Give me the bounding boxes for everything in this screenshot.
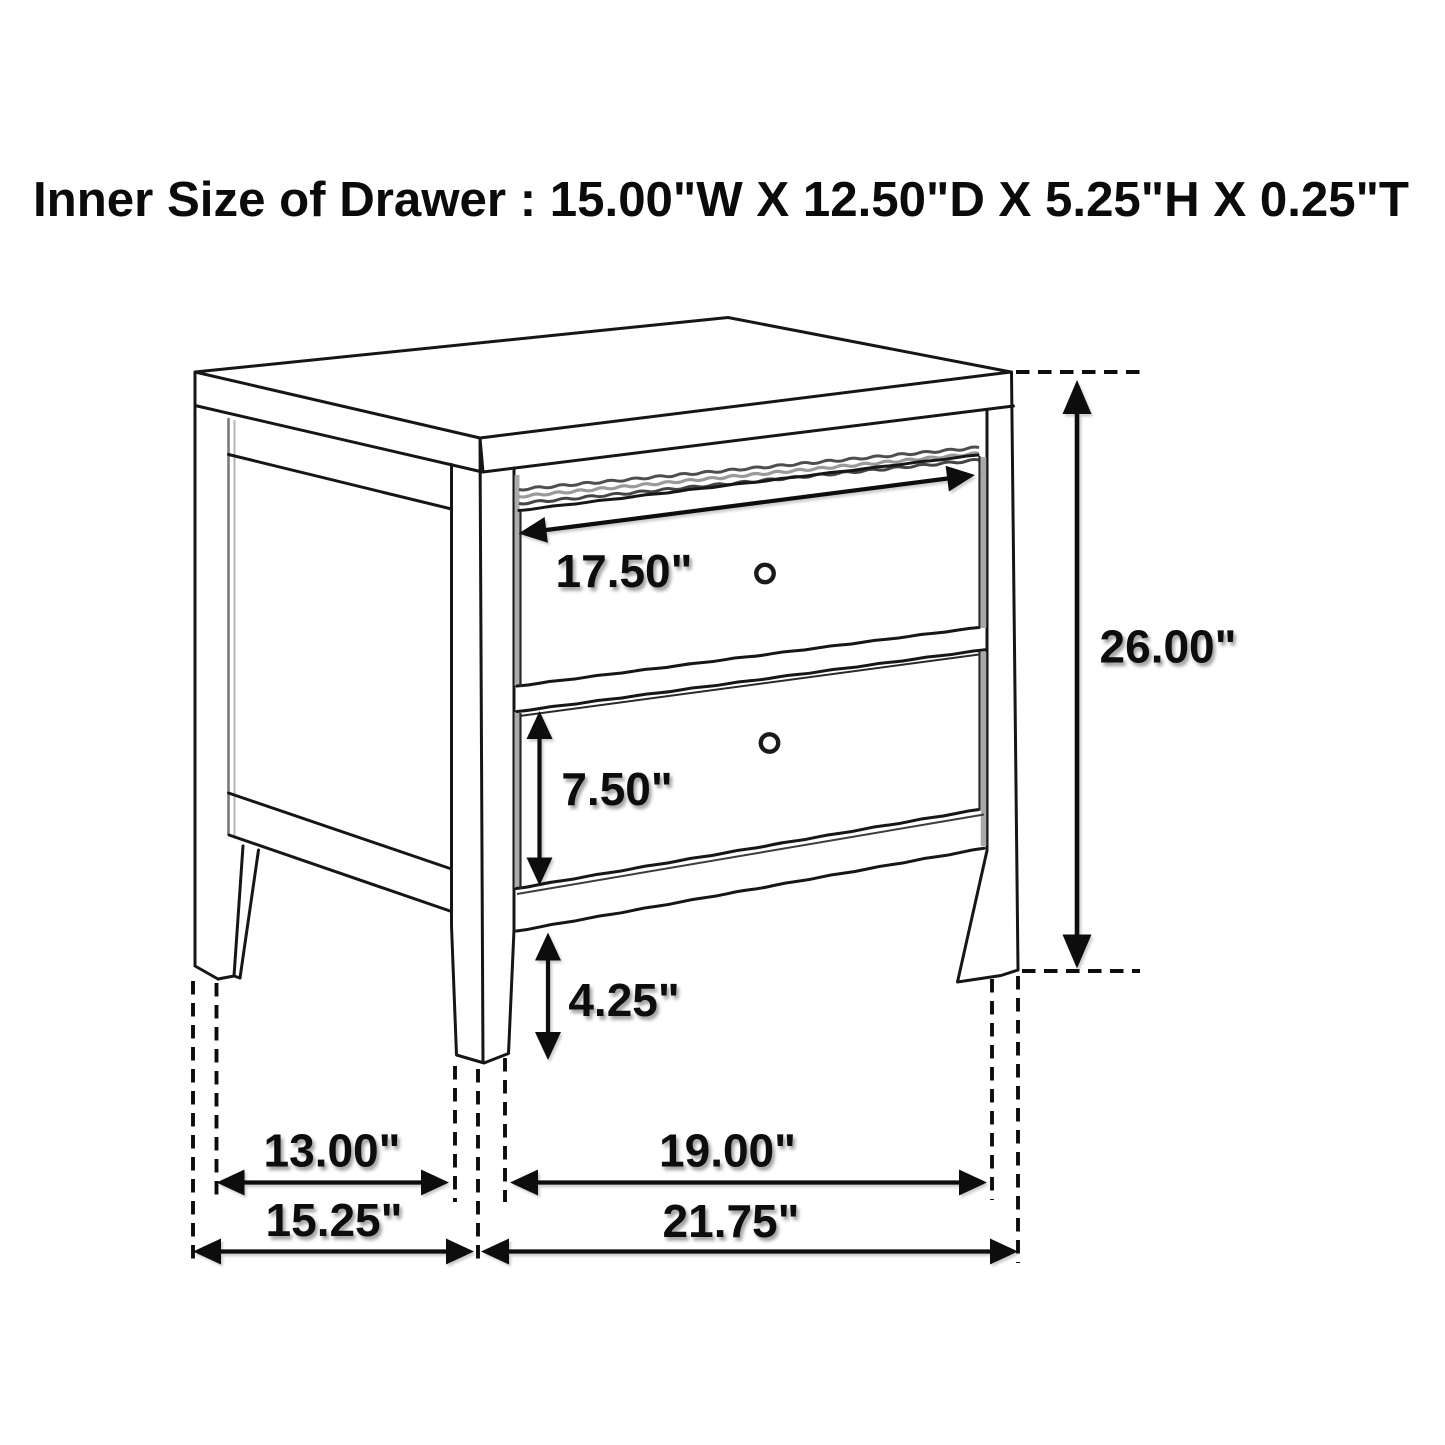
svg-text:17.50": 17.50": [556, 545, 693, 597]
svg-text:13.00": 13.00": [264, 1125, 401, 1177]
svg-text:26.00": 26.00": [1100, 621, 1237, 673]
svg-text:21.75": 21.75": [663, 1195, 800, 1247]
svg-text:15.25": 15.25": [266, 1194, 403, 1246]
svg-text:7.50": 7.50": [561, 763, 672, 815]
svg-text:19.00": 19.00": [659, 1125, 796, 1177]
svg-text:4.25": 4.25": [568, 974, 679, 1026]
svg-text:Inner Size of Drawer : 15.00"W: Inner Size of Drawer : 15.00"W X 12.50"D…: [33, 173, 1409, 227]
